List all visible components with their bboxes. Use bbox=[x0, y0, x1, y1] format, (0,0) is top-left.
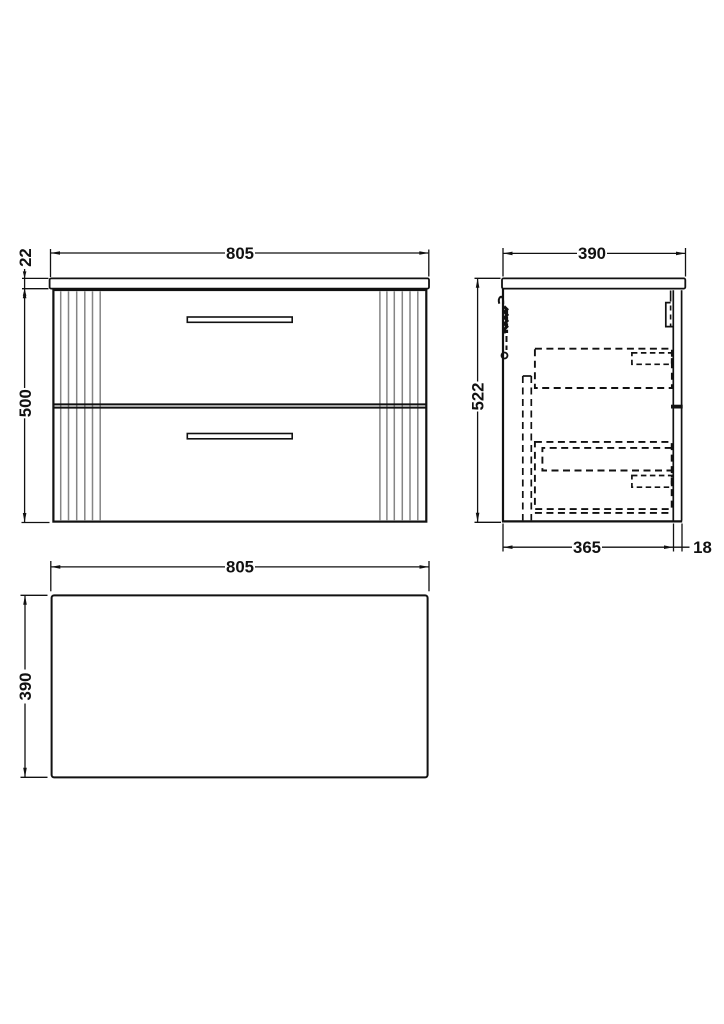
svg-text:522: 522 bbox=[469, 383, 488, 411]
svg-text:22: 22 bbox=[16, 248, 35, 267]
svg-text:18: 18 bbox=[693, 538, 712, 557]
svg-text:805: 805 bbox=[226, 558, 254, 577]
svg-text:365: 365 bbox=[573, 538, 601, 557]
svg-text:390: 390 bbox=[16, 673, 35, 701]
svg-text:390: 390 bbox=[578, 244, 606, 263]
svg-text:500: 500 bbox=[16, 389, 35, 417]
svg-text:805: 805 bbox=[226, 244, 254, 263]
